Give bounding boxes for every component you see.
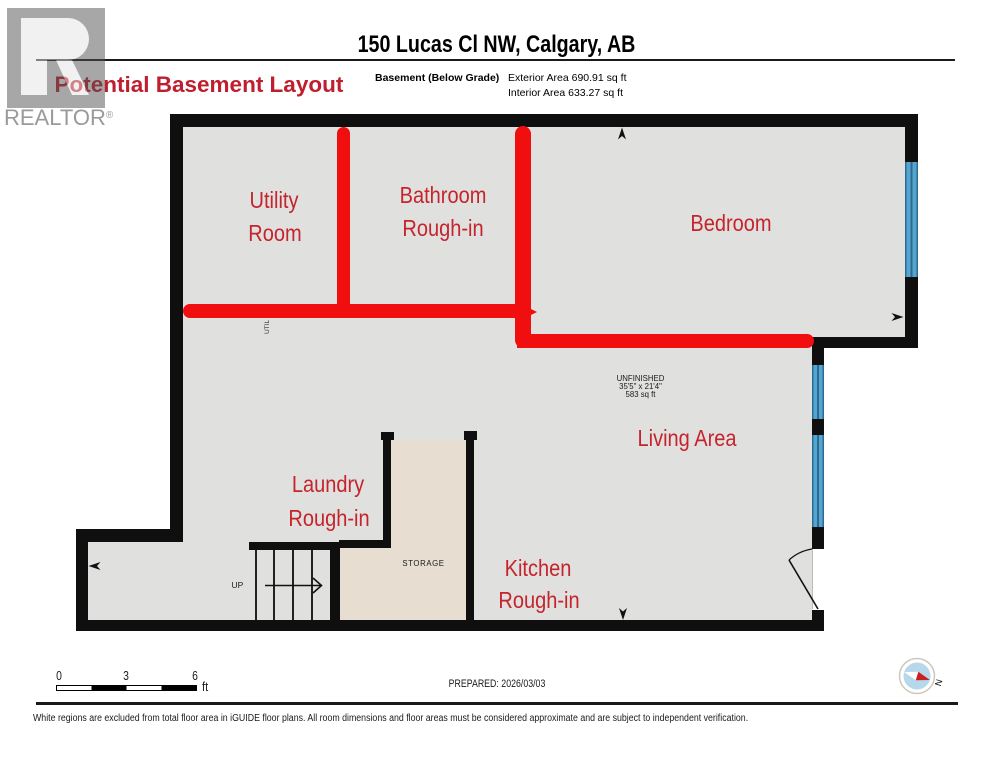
svg-text:N: N	[933, 678, 944, 687]
